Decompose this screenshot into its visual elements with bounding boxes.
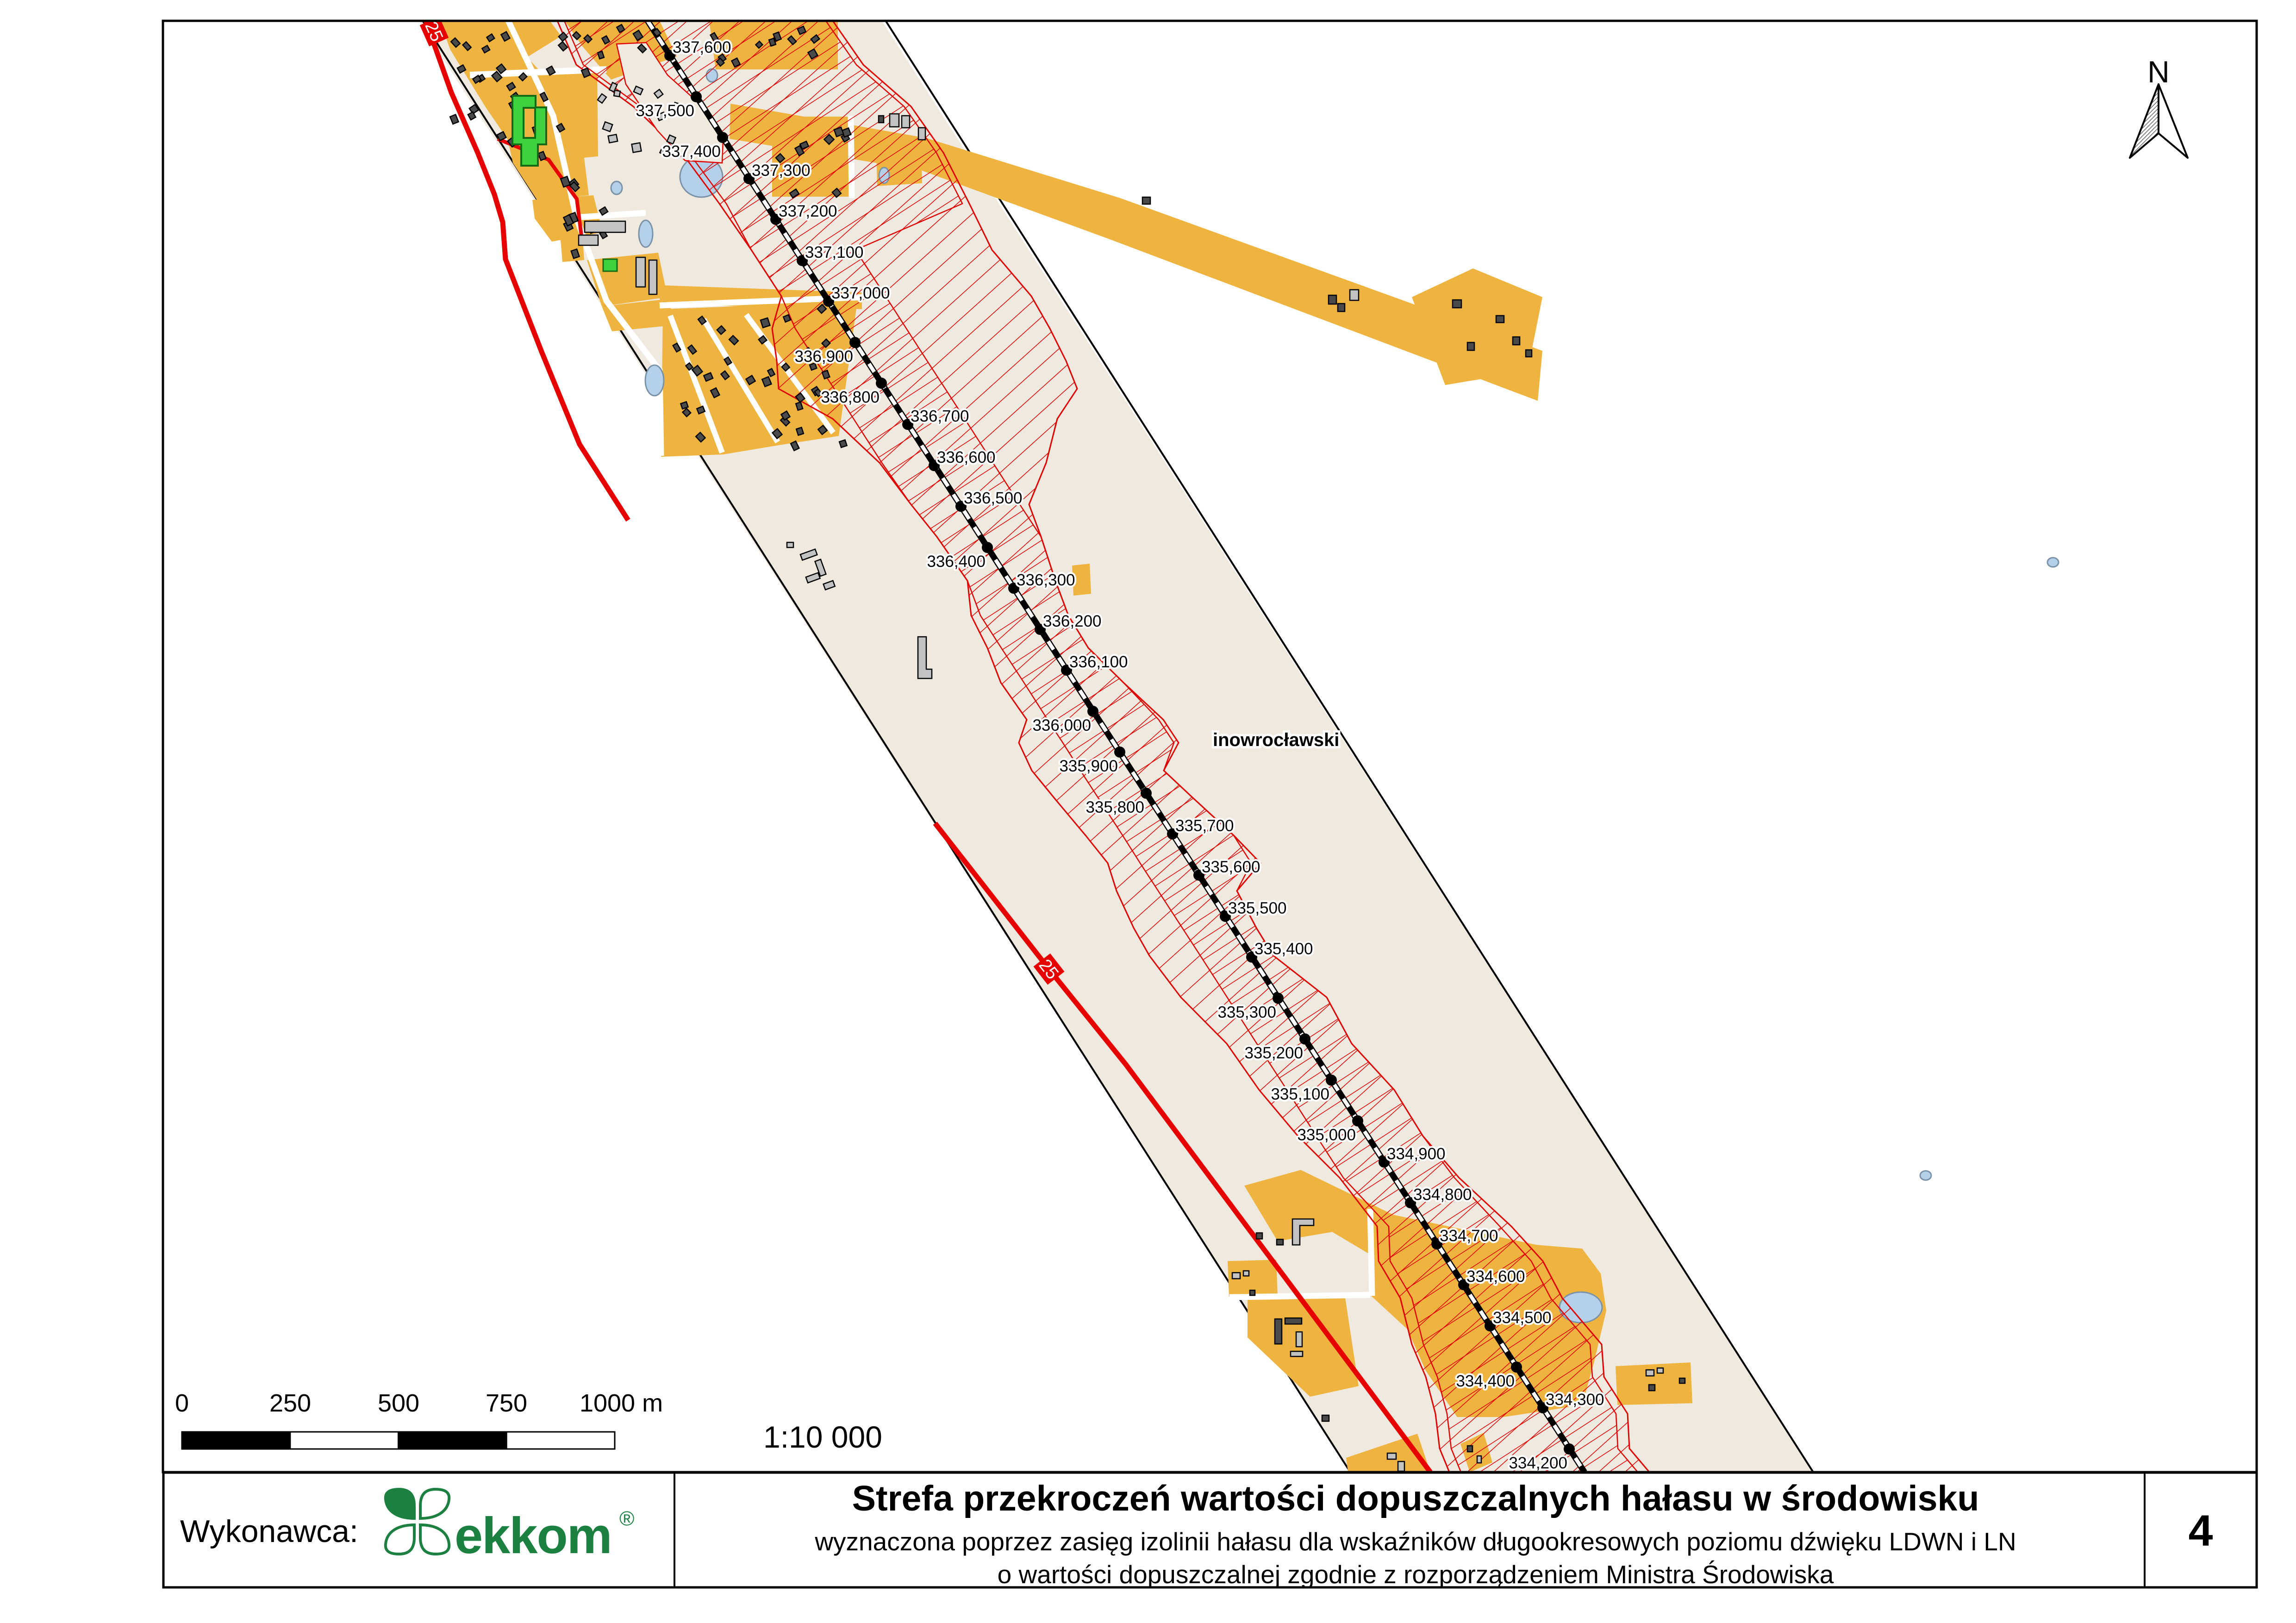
svg-text:334,500: 334,500	[1493, 1309, 1552, 1327]
svg-text:336,600: 336,600	[937, 448, 996, 466]
svg-text:336,400: 336,400	[927, 553, 986, 571]
svg-text:ekkom: ekkom	[455, 1507, 611, 1564]
svg-text:o wartości dopuszczalnej zgodn: o wartości dopuszczalnej zgodnie z rozpo…	[998, 1560, 1834, 1589]
svg-text:1:10 000: 1:10 000	[763, 1420, 882, 1454]
svg-text:335,000: 335,000	[1297, 1126, 1356, 1144]
svg-text:334,200: 334,200	[1509, 1454, 1567, 1472]
svg-text:334,400: 334,400	[1456, 1372, 1515, 1390]
svg-text:337,300: 337,300	[752, 162, 811, 180]
svg-text:336,300: 336,300	[1017, 571, 1075, 589]
svg-text:336,800: 336,800	[821, 388, 880, 406]
svg-text:336,700: 336,700	[911, 407, 969, 425]
svg-text:336,500: 336,500	[964, 489, 1023, 507]
svg-text:335,800: 335,800	[1086, 798, 1144, 816]
svg-text:335,200: 335,200	[1244, 1044, 1303, 1062]
svg-text:®: ®	[619, 1507, 634, 1530]
svg-text:500: 500	[378, 1389, 419, 1417]
svg-text:337,200: 337,200	[779, 202, 837, 220]
svg-text:0: 0	[175, 1389, 189, 1417]
svg-text:335,500: 335,500	[1228, 899, 1287, 917]
svg-text:336,900: 336,900	[794, 348, 853, 366]
svg-text:Strefa przekroczeń wartości do: Strefa przekroczeń wartości dopuszczalny…	[852, 1479, 1979, 1518]
svg-text:337,600: 337,600	[673, 38, 731, 56]
svg-text:334,900: 334,900	[1387, 1145, 1446, 1163]
svg-text:1000 m: 1000 m	[580, 1389, 663, 1417]
svg-text:335,600: 335,600	[1202, 858, 1260, 876]
svg-text:wyznaczona poprzez zasięg izol: wyznaczona poprzez zasięg izolinii hałas…	[814, 1527, 2016, 1556]
svg-text:334,800: 334,800	[1413, 1186, 1472, 1204]
svg-text:inowrocławski: inowrocławski	[1213, 730, 1339, 750]
svg-text:335,700: 335,700	[1175, 817, 1234, 835]
svg-text:337,100: 337,100	[805, 243, 864, 261]
svg-text:337,000: 337,000	[831, 284, 890, 302]
svg-text:337,500: 337,500	[636, 102, 694, 120]
svg-text:Wykonawca:: Wykonawca:	[180, 1514, 358, 1549]
svg-text:250: 250	[269, 1389, 311, 1417]
svg-text:335,100: 335,100	[1271, 1085, 1329, 1103]
svg-text:750: 750	[486, 1389, 527, 1417]
svg-text:4: 4	[2189, 1506, 2213, 1555]
svg-text:335,400: 335,400	[1254, 940, 1313, 958]
svg-text:336,200: 336,200	[1043, 612, 1102, 630]
svg-text:334,600: 334,600	[1466, 1268, 1525, 1286]
svg-text:334,700: 334,700	[1440, 1227, 1498, 1245]
svg-text:336,100: 336,100	[1069, 653, 1128, 671]
svg-text:334,300: 334,300	[1546, 1391, 1604, 1409]
svg-text:335,300: 335,300	[1217, 1003, 1276, 1021]
svg-text:N: N	[2147, 55, 2170, 89]
svg-text:335,900: 335,900	[1059, 757, 1118, 775]
svg-text:337,400: 337,400	[662, 143, 721, 161]
svg-text:336,000: 336,000	[1032, 716, 1091, 734]
